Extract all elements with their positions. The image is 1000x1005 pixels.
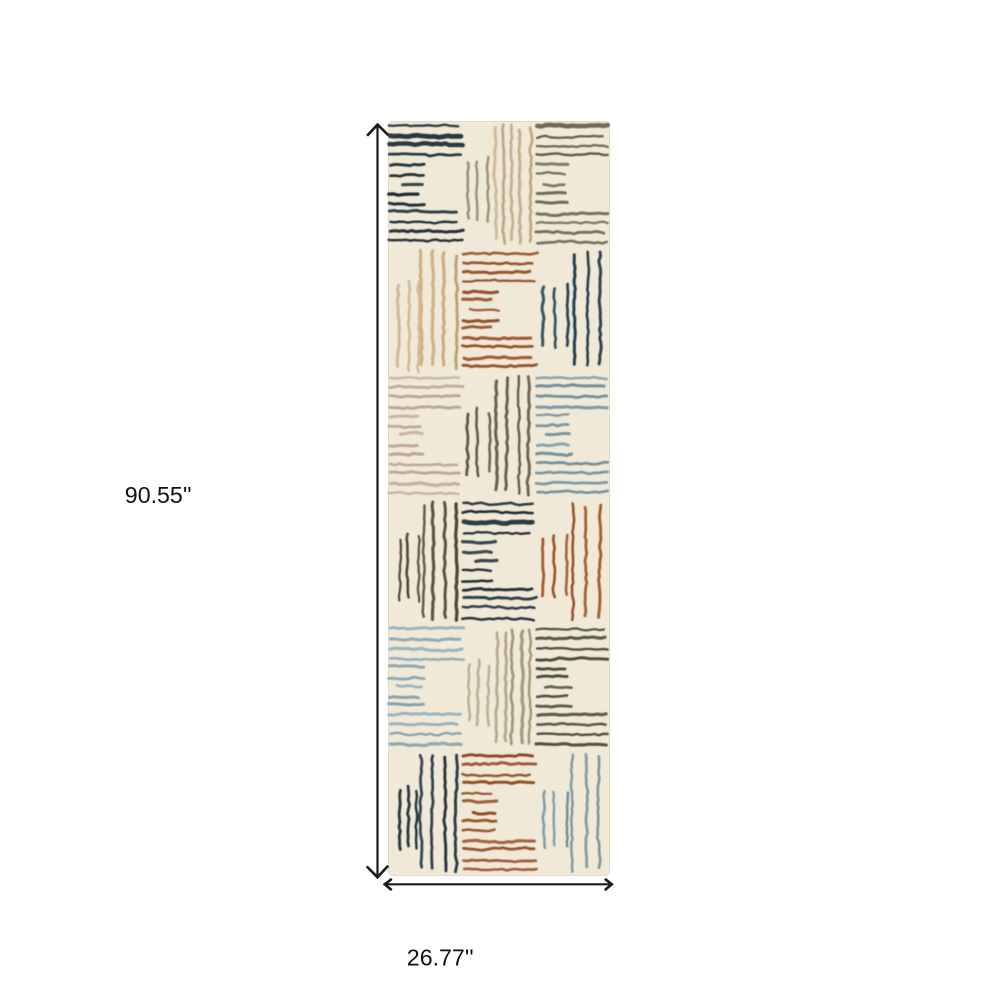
svg-text:90.55'': 90.55'' — [125, 482, 192, 508]
svg-text:26.77'': 26.77'' — [407, 945, 474, 971]
